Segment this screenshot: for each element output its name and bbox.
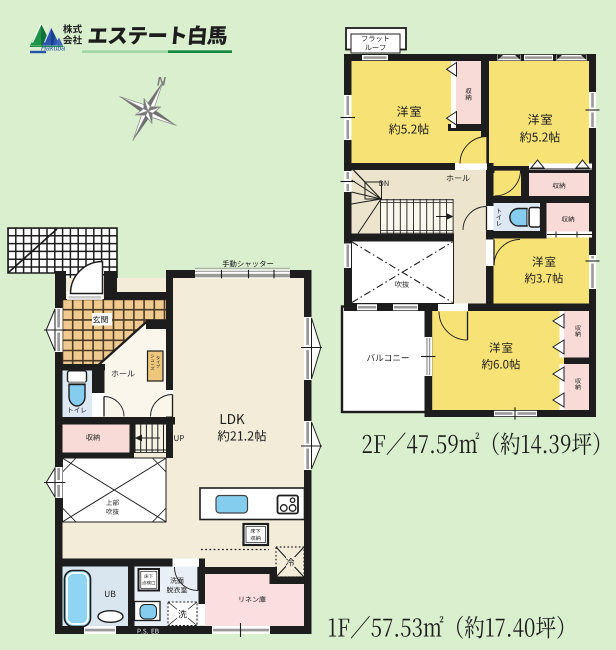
svg-text:N: N <box>157 75 166 89</box>
